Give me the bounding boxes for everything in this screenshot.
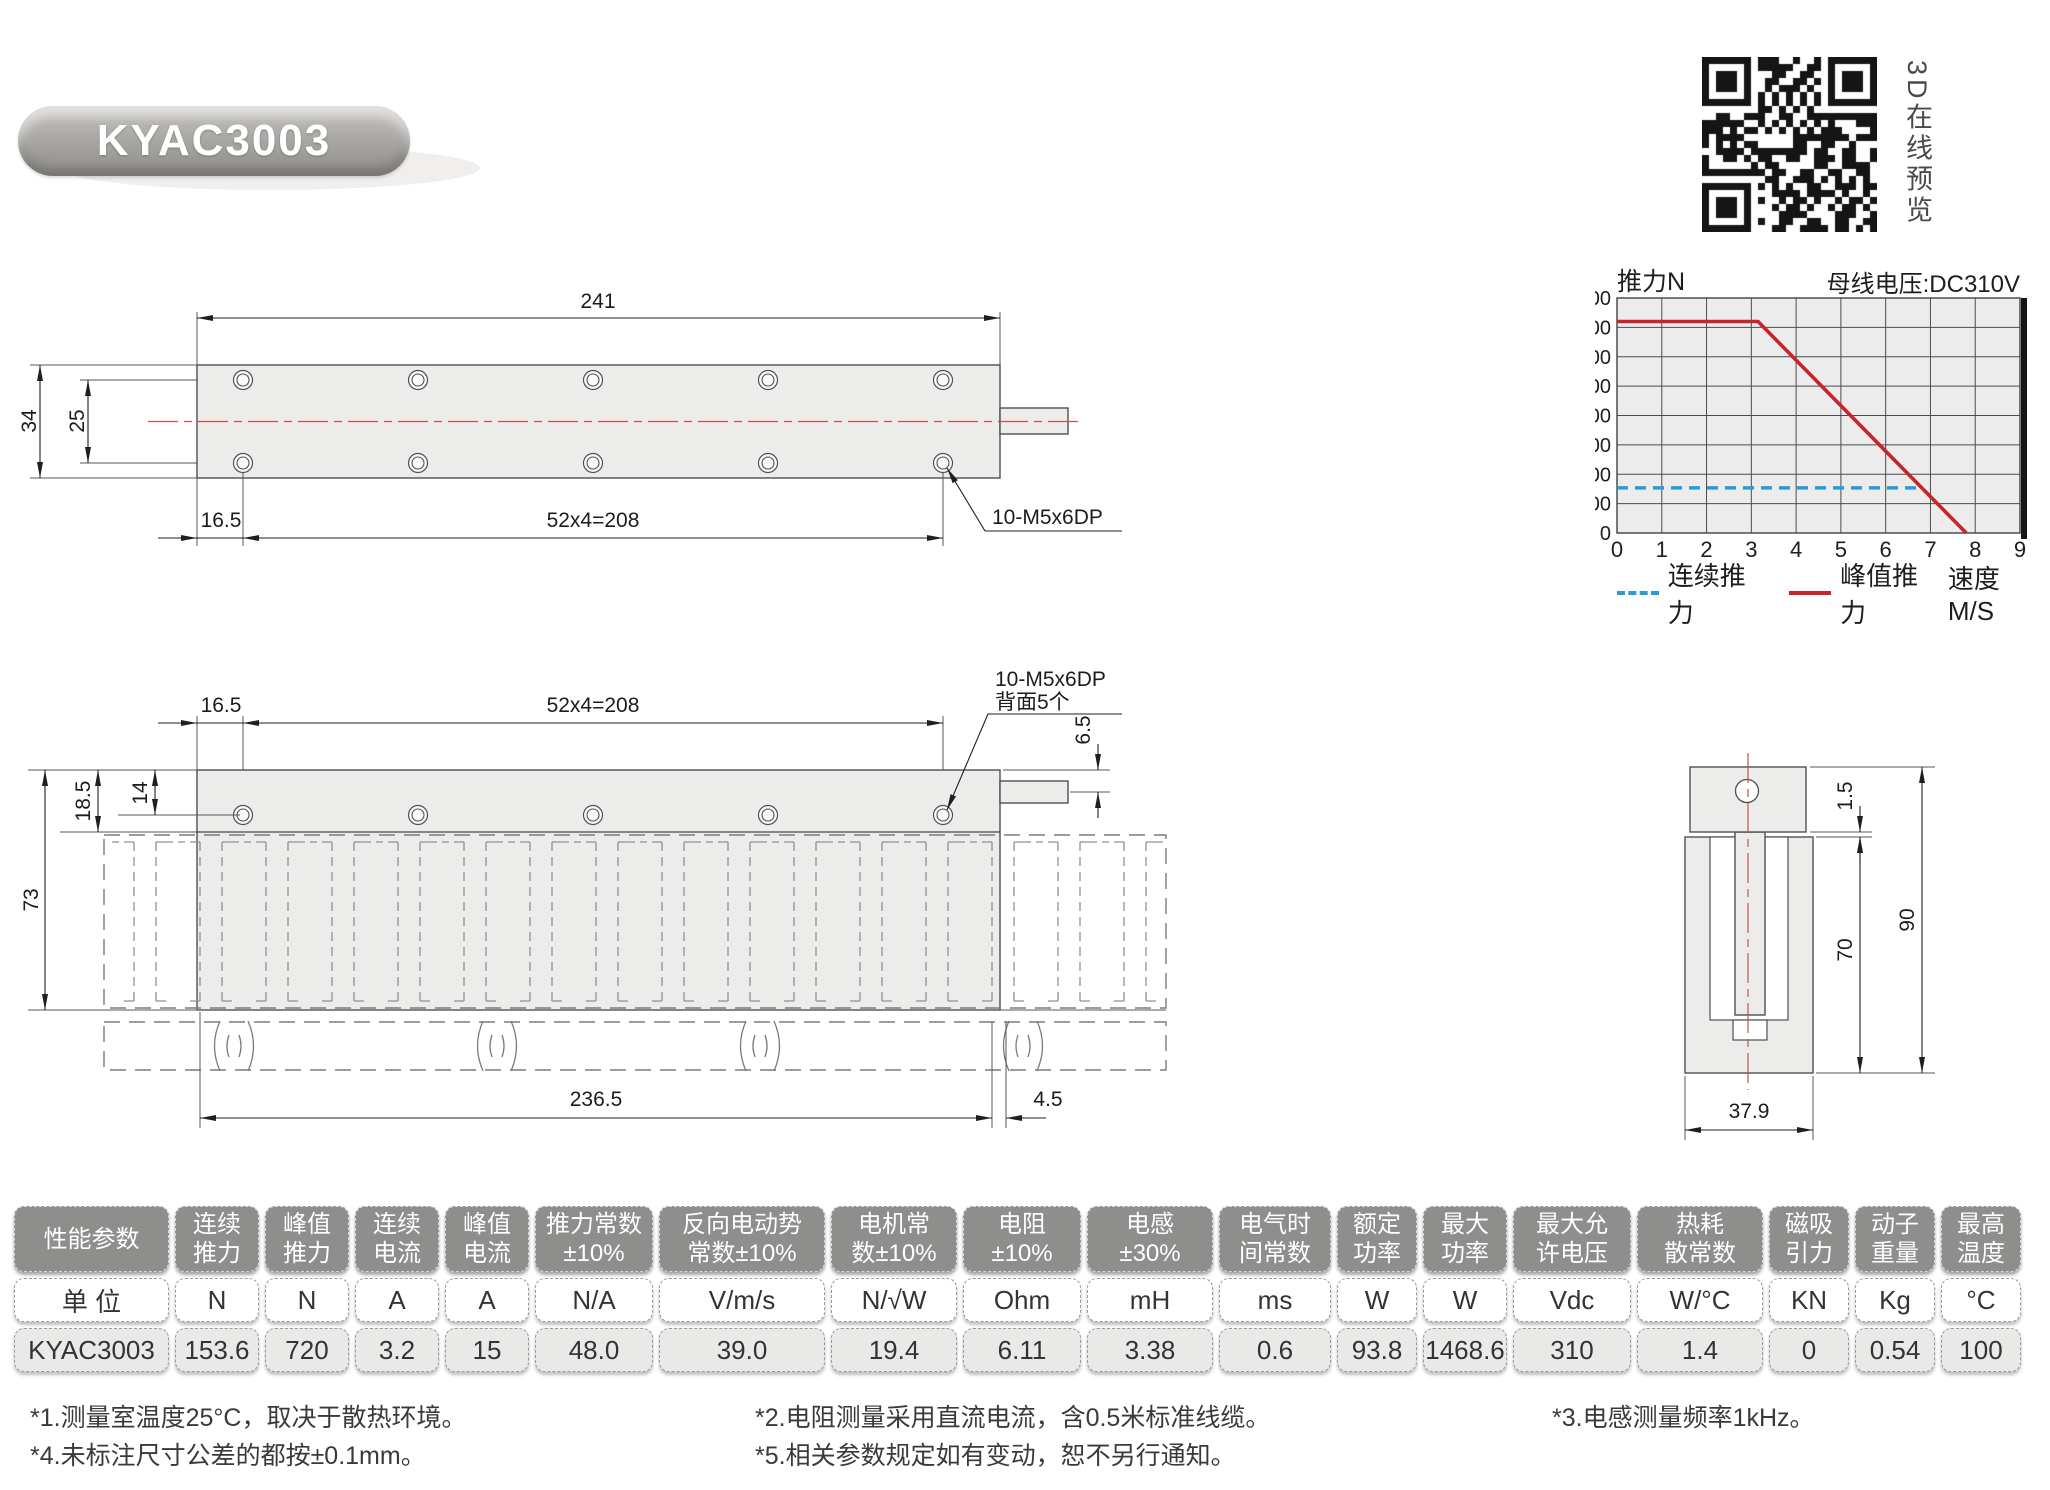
technical-drawings: 241 34 25 16.5 52x4=208 10-M5x6DP 16.5 5… xyxy=(0,240,2050,1200)
table-header-cell: 性能参数 xyxy=(14,1206,169,1272)
dim-label-width: 34 xyxy=(18,409,41,433)
table-value-cell: 310 xyxy=(1513,1328,1631,1372)
dim-label-pitch: 52x4=208 xyxy=(547,509,640,532)
table-unit-cell: KN xyxy=(1769,1278,1849,1322)
table-column-3: 连续 电流A3.2 xyxy=(355,1206,439,1372)
table-header-cell: 电机常 数±10% xyxy=(831,1206,957,1272)
table-column-11: 额定 功率W93.8 xyxy=(1337,1206,1417,1372)
table-unit-cell: V/m/s xyxy=(659,1278,825,1322)
table-value-cell: 720 xyxy=(265,1328,349,1372)
table-column-14: 热耗 散常数W/°C1.4 xyxy=(1637,1206,1763,1372)
thread-callout-line2: 背面5个 xyxy=(995,691,1070,714)
dim-label-hole-span: 25 xyxy=(66,409,89,432)
table-value-cell: 3.2 xyxy=(355,1328,439,1372)
table-column-8: 电阻 ±10%Ohm6.11 xyxy=(963,1206,1081,1372)
table-unit-cell: Kg xyxy=(1855,1278,1935,1322)
table-unit-cell: N xyxy=(265,1278,349,1322)
table-unit-cell: 单 位 xyxy=(14,1278,169,1322)
stator-teeth-pattern xyxy=(112,838,1165,1005)
table-header-cell: 电气时 间常数 xyxy=(1219,1206,1331,1272)
mount-hole xyxy=(1736,780,1759,803)
table-value-cell: 153.6 xyxy=(175,1328,259,1372)
cable-tab-front-view xyxy=(1000,781,1068,803)
dim-label-offset: 16.5 xyxy=(201,509,242,532)
dim-label-pitch: 52x4=208 xyxy=(547,694,640,717)
table-unit-cell: °C xyxy=(1941,1278,2021,1322)
footnote-1: *1.测量室温度25°C，取决于散热环境。 xyxy=(30,1398,466,1434)
dim-label-width: 37.9 xyxy=(1729,1100,1770,1123)
table-header-cell: 最大 功率 xyxy=(1423,1206,1507,1272)
dim-label-tab: 6.5 xyxy=(1072,715,1095,744)
top-view-drawing: 241 34 25 16.5 52x4=208 10-M5x6DP xyxy=(18,290,1122,546)
table-unit-cell: N/√W xyxy=(831,1278,957,1322)
table-header-cell: 峰值 电流 xyxy=(445,1206,529,1272)
table-value-cell: 3.38 xyxy=(1087,1328,1213,1372)
page-title: KYAC3003 xyxy=(97,116,332,166)
table-unit-cell: W xyxy=(1423,1278,1507,1322)
table-value-cell: 0.54 xyxy=(1855,1328,1935,1372)
table-header-cell: 动子 重量 xyxy=(1855,1206,1935,1272)
table-unit-cell: mH xyxy=(1087,1278,1213,1322)
table-column-9: 电感 ±30%mH3.38 xyxy=(1087,1206,1213,1372)
table-unit-cell: W xyxy=(1337,1278,1417,1322)
table-unit-cell: W/°C xyxy=(1637,1278,1763,1322)
table-column-15: 磁吸 引力KN0 xyxy=(1769,1206,1849,1372)
table-header-cell: 电阻 ±10% xyxy=(963,1206,1081,1272)
table-column-17: 最高 温度°C100 xyxy=(1941,1206,2021,1372)
table-value-cell: 1468.6 xyxy=(1423,1328,1507,1372)
table-header-cell: 最大允 许电压 xyxy=(1513,1206,1631,1272)
dim-label-length: 241 xyxy=(580,290,615,313)
table-unit-cell: N/A xyxy=(535,1278,653,1322)
table-column-10: 电气时 间常数ms0.6 xyxy=(1219,1206,1331,1372)
dim-label-stator-height: 70 xyxy=(1834,938,1857,961)
table-unit-cell: Ohm xyxy=(963,1278,1081,1322)
table-header-cell: 热耗 散常数 xyxy=(1637,1206,1763,1272)
table-column-12: 最大 功率W1468.6 xyxy=(1423,1206,1507,1372)
table-value-cell: 0.6 xyxy=(1219,1328,1331,1372)
table-column-1: 连续 推力N153.6 xyxy=(175,1206,259,1372)
table-value-cell: 39.0 xyxy=(659,1328,825,1372)
table-header-cell: 连续 电流 xyxy=(355,1206,439,1272)
dim-label-end-gap: 4.5 xyxy=(1033,1088,1062,1111)
footnote-4: *4.未标注尺寸公差的都按±0.1mm。 xyxy=(30,1436,426,1472)
table-unit-cell: A xyxy=(355,1278,439,1322)
table-unit-cell: N xyxy=(175,1278,259,1322)
table-column-5: 推力常数 ±10%N/A48.0 xyxy=(535,1206,653,1372)
coil-band-outline xyxy=(104,1022,1166,1070)
footnote-3: *3.电感测量频率1kHz。 xyxy=(1552,1398,1815,1434)
table-header-cell: 峰值 推力 xyxy=(265,1206,349,1272)
table-header-cell: 电感 ±30% xyxy=(1087,1206,1213,1272)
table-value-cell: 15 xyxy=(445,1328,529,1372)
thread-callout: 10-M5x6DP xyxy=(992,506,1103,529)
table-column-13: 最大允 许电压Vdc310 xyxy=(1513,1206,1631,1372)
section-view-drawing: 1.5 70 90 37.9 xyxy=(1685,753,1935,1140)
table-unit-cell: A xyxy=(445,1278,529,1322)
table-column-2: 峰值 推力N720 xyxy=(265,1206,349,1372)
table-column-16: 动子 重量Kg0.54 xyxy=(1855,1206,1935,1372)
qr-code xyxy=(1702,57,1877,232)
table-value-cell: 19.4 xyxy=(831,1328,957,1372)
dim-label-plate: 18.5 xyxy=(72,781,95,822)
dim-label-gap: 1.5 xyxy=(1834,781,1857,810)
thread-callout-line1: 10-M5x6DP xyxy=(995,668,1106,691)
table-value-cell: 48.0 xyxy=(535,1328,653,1372)
table-unit-cell: Vdc xyxy=(1513,1278,1631,1322)
table-value-cell: 0 xyxy=(1769,1328,1849,1372)
table-column-7: 电机常 数±10%N/√W19.4 xyxy=(831,1206,957,1372)
mover-blade-section xyxy=(1735,832,1765,1015)
parameter-table: 性能参数单 位KYAC3003连续 推力N153.6峰值 推力N720连续 电流… xyxy=(14,1206,2021,1372)
table-header-cell: 推力常数 ±10% xyxy=(535,1206,653,1272)
table-header-cell: 磁吸 引力 xyxy=(1769,1206,1849,1272)
table-column-6: 反向电动势 常数±10%V/m/s39.0 xyxy=(659,1206,825,1372)
dim-label-hole-row: 14 xyxy=(129,781,152,805)
model-badge: KYAC3003 xyxy=(18,106,410,176)
dim-label-total-height: 90 xyxy=(1896,908,1919,931)
table-unit-cell: ms xyxy=(1219,1278,1331,1322)
table-header-cell: 最高 温度 xyxy=(1941,1206,2021,1272)
table-value-cell: 1.4 xyxy=(1637,1328,1763,1372)
table-value-cell: 100 xyxy=(1941,1328,2021,1372)
qr-caption: 3D在线预览 xyxy=(1898,60,1937,250)
footnote-5: *5.相关参数规定如有变动，恕不另行通知。 xyxy=(755,1436,1236,1472)
table-header-cell: 反向电动势 常数±10% xyxy=(659,1206,825,1272)
front-view-drawing: 16.5 52x4=208 10-M5x6DP 背面5个 6.5 73 18.5… xyxy=(20,668,1166,1128)
table-header-cell: 额定 功率 xyxy=(1337,1206,1417,1272)
table-header-cell: 连续 推力 xyxy=(175,1206,259,1272)
dim-label-offset: 16.5 xyxy=(201,694,242,717)
dim-label-total-height: 73 xyxy=(20,888,43,911)
table-column-4: 峰值 电流A15 xyxy=(445,1206,529,1372)
table-column-0: 性能参数单 位KYAC3003 xyxy=(14,1206,169,1372)
table-value-cell: 93.8 xyxy=(1337,1328,1417,1372)
table-value-cell: KYAC3003 xyxy=(14,1328,169,1372)
table-value-cell: 6.11 xyxy=(963,1328,1081,1372)
footnote-2: *2.电阻测量采用直流电流，含0.5米标准线缆。 xyxy=(755,1398,1270,1434)
dim-label-stator-length: 236.5 xyxy=(570,1088,623,1111)
